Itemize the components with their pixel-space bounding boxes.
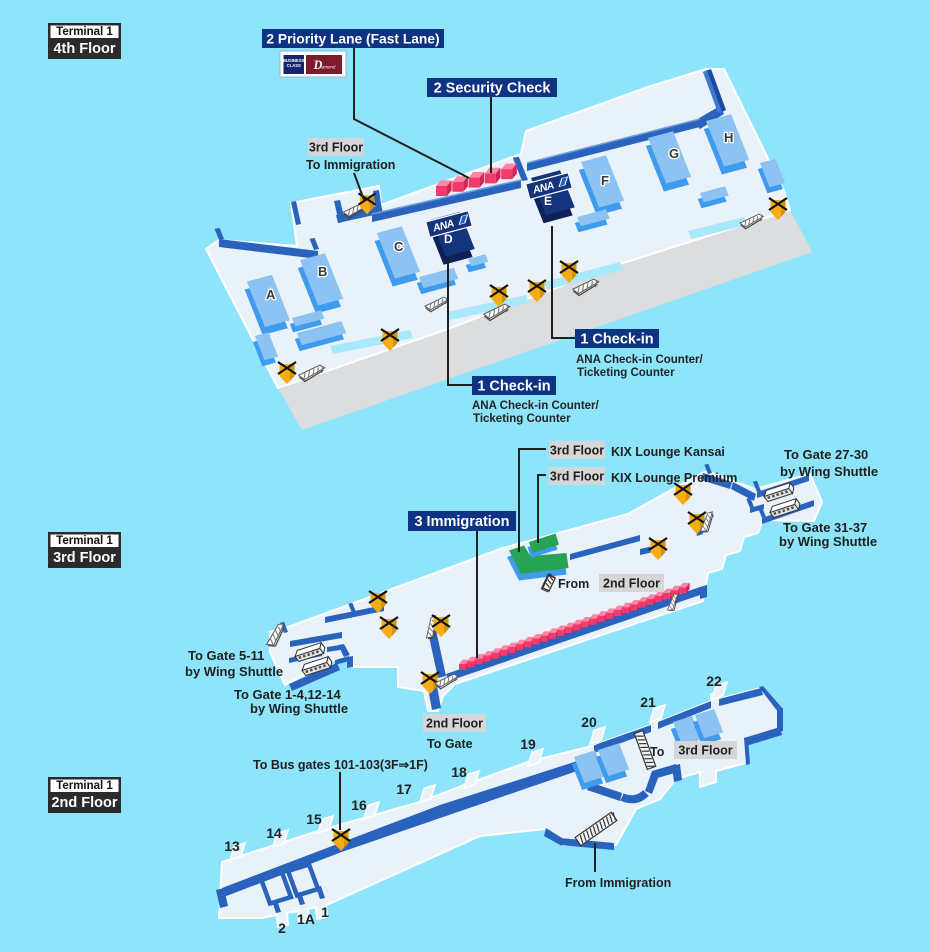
svg-text:BUSINESS: BUSINESS bbox=[283, 58, 305, 63]
svg-text:To Immigration: To Immigration bbox=[306, 158, 395, 172]
svg-text:CLASS: CLASS bbox=[287, 63, 301, 68]
svg-text:Terminal 1: Terminal 1 bbox=[56, 535, 113, 547]
svg-text:4th Floor: 4th Floor bbox=[53, 41, 115, 57]
svg-text:22: 22 bbox=[706, 673, 722, 689]
svg-text:From: From bbox=[558, 577, 589, 591]
svg-text:2nd Floor: 2nd Floor bbox=[51, 795, 117, 811]
svg-text:by Wing Shuttle: by Wing Shuttle bbox=[779, 534, 877, 549]
svg-text:3rd Floor: 3rd Floor bbox=[550, 470, 604, 484]
svg-text:From Immigration: From Immigration bbox=[565, 876, 671, 890]
svg-text:D: D bbox=[444, 232, 453, 246]
svg-text:3rd Floor: 3rd Floor bbox=[53, 550, 116, 566]
svg-text:15: 15 bbox=[306, 811, 322, 827]
svg-text:iamond: iamond bbox=[320, 65, 335, 70]
svg-text:ANA Check-in Counter/: ANA Check-in Counter/ bbox=[472, 400, 600, 412]
svg-text:To Gate 5-11: To Gate 5-11 bbox=[188, 648, 264, 663]
svg-text:To Gate 1-4,12-14: To Gate 1-4,12-14 bbox=[234, 687, 341, 702]
svg-text:1 Check-in: 1 Check-in bbox=[580, 332, 653, 348]
svg-text:Ticketing Counter: Ticketing Counter bbox=[577, 367, 675, 379]
svg-text:3rd Floor: 3rd Floor bbox=[550, 444, 604, 458]
svg-text:by Wing Shuttle: by Wing Shuttle bbox=[780, 464, 878, 479]
svg-text:by Wing Shuttle: by Wing Shuttle bbox=[250, 701, 348, 716]
svg-text:Ticketing Counter: Ticketing Counter bbox=[473, 413, 571, 425]
svg-text:1A: 1A bbox=[297, 911, 315, 927]
svg-text:KIX Lounge Kansai: KIX Lounge Kansai bbox=[611, 445, 725, 459]
svg-text:E: E bbox=[544, 194, 552, 208]
svg-text:1: 1 bbox=[321, 904, 329, 920]
svg-text:2 Security Check: 2 Security Check bbox=[434, 81, 552, 97]
svg-text:B: B bbox=[318, 264, 327, 279]
svg-text:To Gate: To Gate bbox=[427, 737, 473, 751]
svg-text:To Gate 27-30: To Gate 27-30 bbox=[784, 447, 868, 462]
svg-text:16: 16 bbox=[351, 797, 367, 813]
svg-text:2: 2 bbox=[278, 920, 286, 936]
svg-text:20: 20 bbox=[581, 714, 597, 730]
svg-text:To: To bbox=[650, 745, 665, 759]
svg-text:Terminal 1: Terminal 1 bbox=[56, 26, 113, 38]
svg-text:21: 21 bbox=[640, 694, 656, 710]
svg-text:19: 19 bbox=[520, 736, 536, 752]
svg-text:C: C bbox=[394, 239, 404, 254]
svg-text:18: 18 bbox=[451, 764, 467, 780]
svg-text:H: H bbox=[724, 130, 733, 145]
svg-text:13: 13 bbox=[224, 838, 240, 854]
svg-text:17: 17 bbox=[396, 781, 412, 797]
svg-text:G: G bbox=[669, 146, 679, 161]
svg-text:2 Priority Lane (Fast Lane): 2 Priority Lane (Fast Lane) bbox=[266, 32, 439, 47]
svg-text:3rd Floor: 3rd Floor bbox=[309, 141, 363, 155]
svg-text:A: A bbox=[266, 287, 276, 302]
svg-text:3 Immigration: 3 Immigration bbox=[414, 514, 509, 530]
svg-text:2nd Floor: 2nd Floor bbox=[603, 577, 660, 591]
svg-text:To Bus gates 101-103(3F⇒1F): To Bus gates 101-103(3F⇒1F) bbox=[253, 758, 428, 772]
svg-text:14: 14 bbox=[266, 825, 282, 841]
svg-text:1 Check-in: 1 Check-in bbox=[477, 379, 550, 395]
svg-text:To Gate 31-37: To Gate 31-37 bbox=[783, 520, 867, 535]
svg-text:F: F bbox=[601, 173, 609, 188]
svg-text:Terminal 1: Terminal 1 bbox=[56, 780, 113, 792]
svg-text:by Wing Shuttle: by Wing Shuttle bbox=[185, 664, 283, 679]
svg-text:KIX Lounge Premium: KIX Lounge Premium bbox=[611, 471, 737, 485]
svg-text:2nd Floor: 2nd Floor bbox=[426, 717, 483, 731]
svg-text:ANA Check-in Counter/: ANA Check-in Counter/ bbox=[576, 354, 704, 366]
svg-text:3rd Floor: 3rd Floor bbox=[678, 744, 732, 758]
